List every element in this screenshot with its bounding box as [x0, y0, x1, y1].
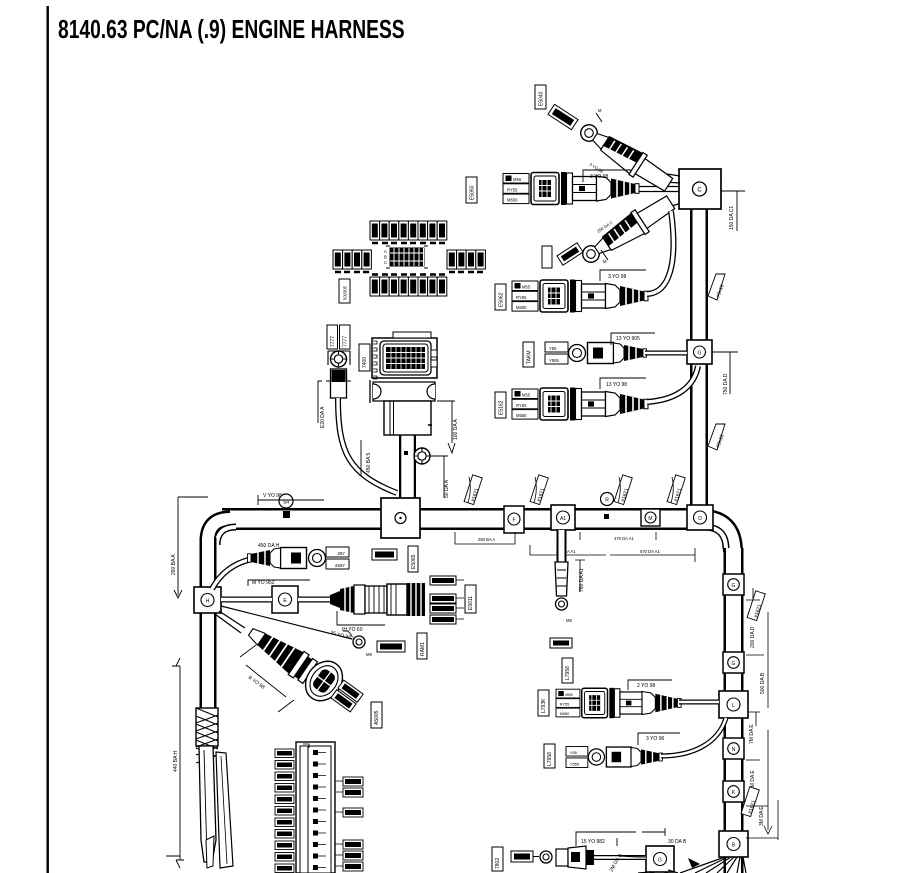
svg-text:E5065: E5065 [411, 554, 417, 569]
svg-text:150 DA C1: 150 DA C1 [729, 206, 735, 230]
svg-text:E5040: E5040 [539, 91, 545, 106]
svg-text:260 BA A: 260 BA A [171, 554, 177, 575]
svg-text:15 YO 982: 15 YO 982 [581, 839, 605, 845]
svg-text:200 DA D: 200 DA D [750, 626, 756, 648]
svg-text:30 DA B: 30 DA B [668, 839, 687, 845]
svg-text:G: G [732, 583, 736, 589]
svg-text:450 DA H: 450 DA H [258, 543, 280, 549]
svg-text:260 BA A: 260 BA A [478, 537, 495, 542]
svg-text:L7958: L7958 [565, 666, 571, 680]
svg-text:N: N [732, 747, 736, 753]
svg-text:7777: 7777 [343, 336, 349, 347]
svg-text:570 DA A1: 570 DA A1 [640, 549, 660, 554]
svg-text:G: G [732, 661, 736, 667]
svg-text:IH YO 60: IH YO 60 [342, 627, 363, 633]
svg-text:7777: 7777 [330, 336, 336, 347]
svg-text:750 DA D: 750 DA D [723, 373, 729, 395]
svg-text:3 YO 98: 3 YO 98 [608, 274, 626, 280]
svg-text:C: C [384, 260, 387, 265]
svg-text:450 BA 5: 450 BA 5 [366, 452, 372, 473]
svg-text:V YO 98: V YO 98 [263, 493, 282, 499]
svg-text:E5050: E5050 [470, 185, 476, 200]
svg-text:L: L [732, 703, 735, 709]
svg-text:G: G [698, 351, 702, 357]
svg-text:3 YO 96: 3 YO 96 [646, 736, 664, 742]
svg-text:3M DA E: 3M DA E [759, 806, 765, 826]
svg-text:7M DA E: 7M DA E [749, 724, 755, 744]
svg-text:R: R [605, 498, 609, 504]
svg-text:C: C [697, 188, 702, 194]
svg-text:13 YO 98: 13 YO 98 [606, 382, 627, 388]
svg-text:M8: M8 [366, 652, 372, 657]
svg-text:2 YO 98: 2 YO 98 [637, 683, 655, 689]
svg-text:470 DA A1: 470 DA A1 [614, 536, 634, 541]
svg-text:E20 DA A: E20 DA A [320, 406, 326, 428]
svg-text:F: F [512, 518, 515, 524]
svg-text:A: A [384, 249, 387, 254]
svg-text:L7958: L7958 [547, 752, 553, 766]
svg-text:500 DA B: 500 DA B [760, 672, 766, 694]
svg-text:D: D [698, 516, 702, 522]
svg-text:E5162: E5162 [499, 400, 505, 415]
svg-text:RAM1: RAM1 [420, 642, 426, 656]
svg-text:13 YO 905: 13 YO 905 [616, 336, 640, 342]
svg-text:M: M [603, 259, 607, 264]
svg-text:G: G [658, 858, 662, 864]
svg-text:M YO 952: M YO 952 [252, 580, 275, 586]
svg-text:M: M [648, 516, 652, 522]
svg-text:8140.63 PC/NA (.9) ENGINE HARN: 8140.63 PC/NA (.9) ENGINE HARNESS [58, 14, 405, 44]
svg-text:760 DA A1: 760 DA A1 [579, 568, 585, 592]
svg-text:3 YO 98: 3 YO 98 [588, 162, 604, 175]
svg-text:50 DA A: 50 DA A [444, 479, 450, 498]
svg-text:440 BA H: 440 BA H [173, 750, 179, 772]
svg-text:M8: M8 [566, 618, 572, 623]
svg-text:E5062: E5062 [499, 292, 505, 307]
svg-text:A5005: A5005 [374, 710, 380, 725]
svg-text:B YO 98: B YO 98 [247, 675, 266, 691]
svg-text:7400: 7400 [362, 357, 368, 368]
svg-text:B: B [384, 255, 387, 260]
svg-text:100 DA A: 100 DA A [453, 418, 459, 440]
svg-text:E5011: E5011 [468, 596, 474, 610]
svg-text:H: H [206, 599, 210, 605]
svg-text:7802: 7802 [495, 858, 501, 869]
svg-text:500305: 500305 [343, 285, 348, 300]
svg-text:M: M [598, 108, 602, 113]
svg-text:3 YO 98: 3 YO 98 [590, 174, 608, 180]
svg-text:L793K: L793K [541, 698, 547, 713]
svg-text:A1: A1 [560, 516, 566, 522]
svg-text:TAKM: TAKM [527, 350, 533, 364]
